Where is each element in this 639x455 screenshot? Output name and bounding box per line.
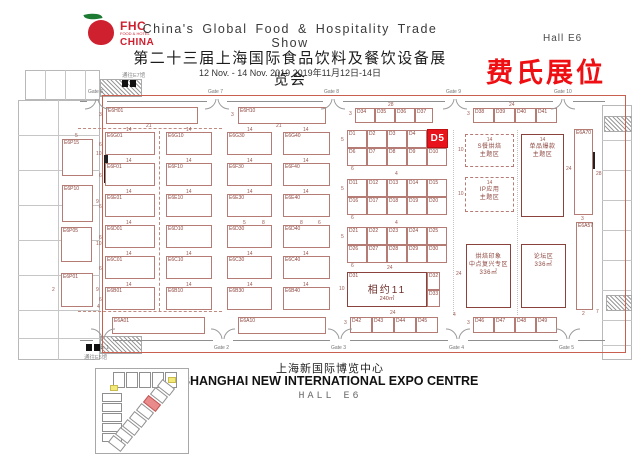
dimension-label: 14 — [247, 159, 253, 164]
booth-label: E6E01 — [107, 195, 122, 201]
hall-wall — [113, 340, 213, 341]
dimension-label: 2 — [52, 288, 55, 293]
booth-d16: D16 — [347, 197, 367, 215]
hall-wall — [468, 340, 558, 341]
booth-label: D34 — [357, 109, 366, 115]
booth-e6b10: E6B10 — [166, 287, 212, 310]
booth-e6g01: E6G01 — [105, 132, 155, 155]
booth-label: D11 — [349, 180, 358, 186]
booth-label: D6 — [349, 149, 355, 155]
dimension-label: 4 — [395, 221, 398, 226]
booth-e6c01: E6C01 — [105, 256, 155, 279]
dimension-label: 3 — [349, 112, 352, 117]
restroom-icon — [86, 344, 100, 351]
dimension-label: 24 — [509, 103, 515, 108]
dimension-label: 4 — [453, 313, 456, 318]
booth-e6p10: E6P10 — [62, 185, 93, 222]
booth-d43: D43 — [372, 317, 394, 333]
dimension-label: 8 — [300, 221, 303, 226]
divider — [65, 70, 66, 100]
dimension-label: 10 — [458, 192, 464, 197]
booth-label: D37 — [417, 109, 426, 115]
theme-area-label: IP应用 — [466, 186, 513, 194]
booth-e6c40: E6C40 — [283, 256, 330, 279]
booth-e6p15: E6P15 — [62, 139, 93, 176]
booth-d26: D26 — [347, 245, 367, 263]
booth-label: E6C40 — [285, 257, 300, 263]
booth-label: D15 — [429, 180, 438, 186]
gate-gate-7-icon — [204, 97, 230, 109]
booth-label: D43 — [374, 318, 383, 324]
gate-label: Gate 3 — [331, 345, 346, 351]
dimension-label: 14 — [126, 283, 132, 288]
booth-d7: D7 — [367, 148, 387, 166]
booth-e6p05: E6P05 — [61, 227, 92, 262]
booth-label: E6G40 — [285, 133, 301, 139]
dimension-label: 8 — [262, 221, 265, 226]
dimension-label: 24 — [456, 272, 462, 277]
booth-label: E6F30 — [229, 164, 244, 170]
booth-label: D48 — [517, 318, 526, 324]
booth-label: D21 — [349, 228, 358, 234]
booth-label: E6D01 — [107, 226, 122, 232]
booth-e6a57: E6A57 — [576, 222, 593, 310]
restroom-icon — [122, 80, 136, 87]
inset-hall-cell — [102, 393, 122, 402]
booth-label: D18 — [389, 198, 398, 204]
booth-d1: D1 — [347, 130, 367, 148]
booth-label: E6A10 — [240, 318, 255, 324]
booth-d19: D19 — [407, 197, 427, 215]
booth-d27: D27 — [367, 245, 387, 263]
booth-label: D49 — [538, 318, 547, 324]
dimension-label: 24 — [566, 167, 572, 172]
hall-wall — [227, 101, 323, 102]
booth-d13: D13 — [387, 179, 407, 197]
theme-area-label: 主题区 — [522, 151, 563, 159]
booth-label: E6G10 — [168, 133, 184, 139]
booth-label: D32 — [429, 273, 438, 279]
booth-d24: D24 — [407, 227, 427, 245]
theme-area-label: 主题区 — [466, 194, 513, 202]
booth-d34: D34 — [355, 108, 375, 123]
booth-d25: D25 — [427, 227, 447, 245]
booth-label: E6G30 — [229, 133, 245, 139]
dimension-label: 14 — [126, 190, 132, 195]
divider — [58, 100, 59, 360]
booth-d45: D45 — [416, 317, 438, 333]
divider — [45, 70, 46, 100]
booth-label: E6F10 — [168, 164, 183, 170]
gate-gate-10-icon — [550, 97, 576, 109]
dimension-label: 14 — [303, 190, 309, 195]
booth-label: E6D40 — [285, 226, 300, 232]
booth-label: D17 — [369, 198, 378, 204]
booth-label: D30 — [429, 246, 438, 252]
dimension-label: 10 — [96, 242, 102, 247]
theme-area-label: 中点复兴专区 — [467, 261, 510, 269]
dimension-label: 14 — [303, 128, 309, 133]
booth-label: E6P05 — [63, 228, 78, 234]
inset-hall-cell — [139, 372, 151, 388]
dimension-label: 5 — [341, 138, 344, 143]
booth-d2: D2 — [367, 130, 387, 148]
dimension-label: 3 — [231, 113, 234, 118]
dimension-label: 14 — [247, 190, 253, 195]
booth-d39: D39 — [494, 108, 515, 123]
booth-label: E6F01 — [107, 164, 122, 170]
dimension-label: 6 — [351, 264, 354, 269]
booth-e6c10: E6C10 — [166, 256, 212, 279]
dimension-label: 6 — [351, 216, 354, 221]
booth-label: D3 — [389, 131, 395, 137]
booth-e6b40: E6B40 — [283, 287, 330, 310]
booth-label: E6C30 — [229, 257, 244, 263]
booth-d35: D35 — [375, 108, 395, 123]
gate-label: Gate 9 — [446, 89, 461, 95]
dimension-label: 14 — [186, 190, 192, 195]
booth-label: D42 — [352, 318, 361, 324]
inset-entrance-marker — [110, 385, 118, 391]
booth-label: D1 — [349, 131, 355, 137]
dimension-label: 28 — [596, 172, 602, 177]
corridor-note: 通往E7馆 — [122, 71, 145, 79]
hall-wall — [578, 340, 605, 341]
theme-area-2: 14单品爆款主题区 — [521, 134, 564, 217]
booth-d48: D48 — [515, 317, 536, 333]
hall-wall — [80, 101, 87, 102]
dimension-label: 6 — [99, 174, 102, 179]
hall-wall — [80, 340, 93, 341]
booth-label: D35 — [377, 109, 386, 115]
booth-d37: D37 — [415, 108, 433, 123]
booth-d47: D47 — [494, 317, 515, 333]
gate-label: Gate 6 — [88, 89, 103, 95]
booth-d4: D4 — [407, 130, 427, 148]
booth-label: E6C10 — [168, 257, 183, 263]
booth-label: D39 — [496, 109, 505, 115]
booth-e6p01: E6P01 — [61, 273, 93, 307]
booth-d10: D10 — [427, 148, 447, 166]
booth-label: D47 — [496, 318, 505, 324]
booth-d44: D44 — [394, 317, 416, 333]
gate-label: Gate 5 — [559, 345, 574, 351]
booth-d12: D12 — [367, 179, 387, 197]
booth-label: D20 — [429, 198, 438, 204]
booth-label: E6P15 — [64, 140, 79, 146]
dimension-label: 14 — [186, 128, 192, 133]
divider — [18, 135, 100, 136]
dimension-label: 14 — [186, 159, 192, 164]
booth-label: D23 — [389, 228, 398, 234]
corridor-note: 通往E5馆 — [84, 353, 107, 361]
divider — [85, 70, 86, 100]
booth-label: D8 — [389, 149, 395, 155]
inset-hall-cell — [126, 372, 138, 388]
booth-d18: D18 — [387, 197, 407, 215]
booth-label: D2 — [369, 131, 375, 137]
dimension-label: 3 — [467, 321, 470, 326]
booth-label: D41 — [538, 109, 547, 115]
dimension-label: 6 — [99, 205, 102, 210]
theme-area-label: 烘焙印象 — [467, 253, 510, 261]
booth-label: D14 — [409, 180, 418, 186]
booth-label: E6H01 — [108, 108, 123, 114]
dimension-label: 14 — [303, 159, 309, 164]
dimension-label: 14 — [247, 128, 253, 133]
booth-d6: D6 — [347, 148, 367, 166]
booth-e6f40: E6F40 — [283, 163, 330, 186]
booth-e6e30: E6E30 — [227, 194, 272, 217]
dimension-label: 3 — [467, 112, 470, 117]
dimension-label: 3 — [99, 113, 102, 118]
booth-e6f30: E6F30 — [227, 163, 272, 186]
hall-wall — [233, 340, 330, 341]
booth-label: E6D10 — [168, 226, 183, 232]
booth-e6b30: E6B30 — [227, 287, 272, 310]
booth-label: D9 — [409, 149, 415, 155]
booth-label: E6P10 — [64, 186, 79, 192]
booth-label: E6D30 — [229, 226, 244, 232]
booth-label: E6B30 — [229, 288, 244, 294]
divider — [18, 338, 100, 339]
booth-label: D22 — [369, 228, 378, 234]
theme-area-0: 14S餐烘焙主题区 — [465, 134, 514, 167]
inset-hall-cell — [102, 413, 122, 422]
booth-label: E6E40 — [285, 195, 300, 201]
dimension-label: 10 — [96, 152, 102, 157]
booth-label: D28 — [389, 246, 398, 252]
dimension-label: 7 — [596, 310, 599, 315]
gate-label: Gate 7 — [208, 89, 223, 95]
dimension-label: 9 — [96, 288, 99, 293]
booth-label: E6E10 — [168, 195, 183, 201]
booth-d23: D23 — [387, 227, 407, 245]
booth-e6d10: E6D10 — [166, 225, 212, 248]
dimension-label: 6 — [99, 143, 102, 148]
booth-d11: D11 — [347, 179, 367, 197]
booth-e6e40: E6E40 — [283, 194, 330, 217]
highlight-booth-label: D5 — [431, 133, 445, 144]
booth-e6f10: E6F10 — [166, 163, 212, 186]
booth-label: E6C01 — [107, 257, 122, 263]
dimension-label: 14 — [126, 221, 132, 226]
dimension-label: 21 — [276, 124, 282, 129]
dimension-label: 14 — [126, 159, 132, 164]
hall-wall — [350, 340, 448, 341]
theme-area-label: 单品爆款 — [522, 143, 563, 151]
booth-d42: D42 — [350, 317, 372, 333]
dimension-label: 6 — [99, 236, 102, 241]
booth-label: D26 — [349, 246, 358, 252]
booth-label: D36 — [397, 109, 406, 115]
booth-label: D29 — [409, 246, 418, 252]
booth-d9: D9 — [407, 148, 427, 166]
dimension-label: 6 — [351, 167, 354, 172]
booth-e6e10: E6E10 — [166, 194, 212, 217]
dimension-label: 14 — [186, 252, 192, 257]
booth-d8: D8 — [387, 148, 407, 166]
booth-label: E6E30 — [229, 195, 244, 201]
gate-gate-9-icon — [442, 97, 468, 109]
theme-area-1: 14IP应用主题区 — [465, 177, 514, 212]
booth-label: D24 — [409, 228, 418, 234]
dimension-label: 14 — [126, 252, 132, 257]
booth-e6g30: E6G30 — [227, 132, 272, 155]
hall-wall — [573, 101, 605, 102]
booth-label: D27 — [369, 246, 378, 252]
booth-e6h01: E6H01 — [106, 107, 198, 124]
dimension-label: 4 — [395, 172, 398, 177]
booth-meet-block: D31相约11240㎡ — [347, 272, 427, 307]
booth-d17: D17 — [367, 197, 387, 215]
booth-d14: D14 — [407, 179, 427, 197]
booth-e6b01: E6B01 — [105, 287, 155, 310]
theme-area-4: 论坛区336㎡ — [521, 244, 566, 308]
dimension-label: 5 — [341, 187, 344, 192]
dimension-label: 3 — [581, 217, 584, 222]
floorplan-page: FHC FOOD & HOTEL CHINA China's Global Fo… — [0, 0, 639, 455]
dimension-label: 5 — [243, 221, 246, 226]
dimension-label: 10 — [458, 148, 464, 153]
dimension-label: 14 — [247, 283, 253, 288]
booth-label: E6A01 — [114, 318, 129, 324]
booth-d21: D21 — [347, 227, 367, 245]
booth-label: D38 — [475, 109, 484, 115]
booth-e6g10: E6G10 — [166, 132, 212, 155]
booth-d15: D15 — [427, 179, 447, 197]
dimension-label: 28 — [388, 103, 394, 108]
dimension-label: 14 — [247, 252, 253, 257]
booth-label: D16 — [349, 198, 358, 204]
booth-e6a70: E6A70 — [574, 129, 593, 215]
meet-block-area: 240㎡ — [348, 294, 426, 302]
booth-label: E6B40 — [285, 288, 300, 294]
left-building-annex — [25, 70, 100, 100]
booth-e6d40: E6D40 — [283, 225, 330, 248]
inset-entrance-marker — [168, 377, 176, 383]
booth-label: D25 — [429, 228, 438, 234]
booth-d30: D30 — [427, 245, 447, 263]
booth-label: D40 — [517, 109, 526, 115]
booth-e6a01: E6A01 — [112, 317, 205, 334]
booth-label: E6G01 — [107, 133, 123, 139]
dimension-label: 6 — [99, 267, 102, 272]
dimension-label: 10 — [339, 287, 345, 292]
booth-label: D44 — [396, 318, 405, 324]
booth-e6f01: E6F01 — [105, 163, 155, 186]
booth-label: D45 — [418, 318, 427, 324]
booth-d5-highlight: D5 — [427, 129, 448, 148]
booth-d29: D29 — [407, 245, 427, 263]
dimension-label: 6 — [318, 221, 321, 226]
dimension-label: 14 — [126, 128, 132, 133]
inset-hall-cell — [102, 403, 122, 412]
hall-wall — [107, 101, 207, 102]
booth-e6c30: E6C30 — [227, 256, 272, 279]
theme-area-label: 主题区 — [466, 151, 513, 159]
booth-d40: D40 — [515, 108, 536, 123]
gate-label: Gate 10 — [554, 89, 572, 95]
booth-label: E6B01 — [107, 288, 122, 294]
dimension-label: 5 — [75, 134, 78, 139]
booth-label: D10 — [429, 149, 438, 155]
booth-d41: D41 — [536, 108, 557, 123]
booth-label: E6A70 — [576, 130, 591, 136]
booth-label: D31 — [349, 273, 358, 279]
dimension-label: 6 — [99, 298, 102, 303]
booth-d32: D32 — [427, 272, 440, 290]
booth-label: D12 — [369, 180, 378, 186]
booth-label: D7 — [369, 149, 375, 155]
dimension-label: 14 — [303, 283, 309, 288]
booth-label: E6P01 — [63, 274, 78, 280]
dimension-label: 24 — [390, 311, 396, 316]
booth-d3: D3 — [387, 130, 407, 148]
booth-label: D13 — [389, 180, 398, 186]
booth-e6d01: E6D01 — [105, 225, 155, 248]
gate-label: Gate 8 — [324, 89, 339, 95]
gate-label: Gate 2 — [214, 345, 229, 351]
booth-label: E6H10 — [240, 108, 255, 114]
booth-e6g40: E6G40 — [283, 132, 330, 155]
dimension-label: 24 — [387, 266, 393, 271]
booth-d38: D38 — [473, 108, 494, 123]
theme-area-label: 336㎡ — [522, 261, 565, 269]
booth-e6h10: E6H10 — [238, 107, 326, 124]
gate-gate-6-icon — [84, 97, 110, 109]
venue-hall: HALL E6 — [180, 391, 480, 402]
booth-label: D33 — [429, 291, 438, 297]
booth-label: E6B10 — [168, 288, 183, 294]
theme-area-label: S餐烘焙 — [466, 143, 513, 151]
booth-d33: D33 — [427, 290, 440, 307]
theme-area-3: 烘焙印象中点复兴专区336㎡ — [466, 244, 511, 308]
dimension-label: 21 — [146, 124, 152, 129]
booth-d28: D28 — [387, 245, 407, 263]
dimension-label: 3 — [344, 321, 347, 326]
theme-area-label: 论坛区 — [522, 253, 565, 261]
booth-d36: D36 — [395, 108, 415, 123]
gate-label: Gate 4 — [449, 345, 464, 351]
dimension-label: 14 — [186, 283, 192, 288]
venue-inset-map — [95, 368, 189, 454]
dimension-label: 5 — [341, 235, 344, 240]
booth-label: D4 — [409, 131, 415, 137]
hall-wall — [343, 101, 445, 102]
booth-d49: D49 — [536, 317, 557, 333]
booth-e6e01: E6E01 — [105, 194, 155, 217]
gate-gate-8-icon — [320, 97, 346, 109]
theme-area-label: 336㎡ — [467, 269, 510, 277]
dimension-label: 4 — [97, 305, 100, 310]
booth-label: E6A57 — [578, 223, 593, 229]
booth-label: D19 — [409, 198, 418, 204]
booth-label: D46 — [475, 318, 484, 324]
dimension-label: 14 — [303, 252, 309, 257]
booth-d20: D20 — [427, 197, 447, 215]
booth-label: E6F40 — [285, 164, 300, 170]
booth-d22: D22 — [367, 227, 387, 245]
booth-e6d30: E6D30 — [227, 225, 272, 248]
venue-name-en: SHANGHAI NEW INTERNATIONAL EXPO CENTRE — [180, 374, 480, 388]
booth-e6a10: E6A10 — [238, 317, 326, 334]
dimension-label: 2 — [582, 312, 585, 317]
booth-d46: D46 — [473, 317, 494, 333]
